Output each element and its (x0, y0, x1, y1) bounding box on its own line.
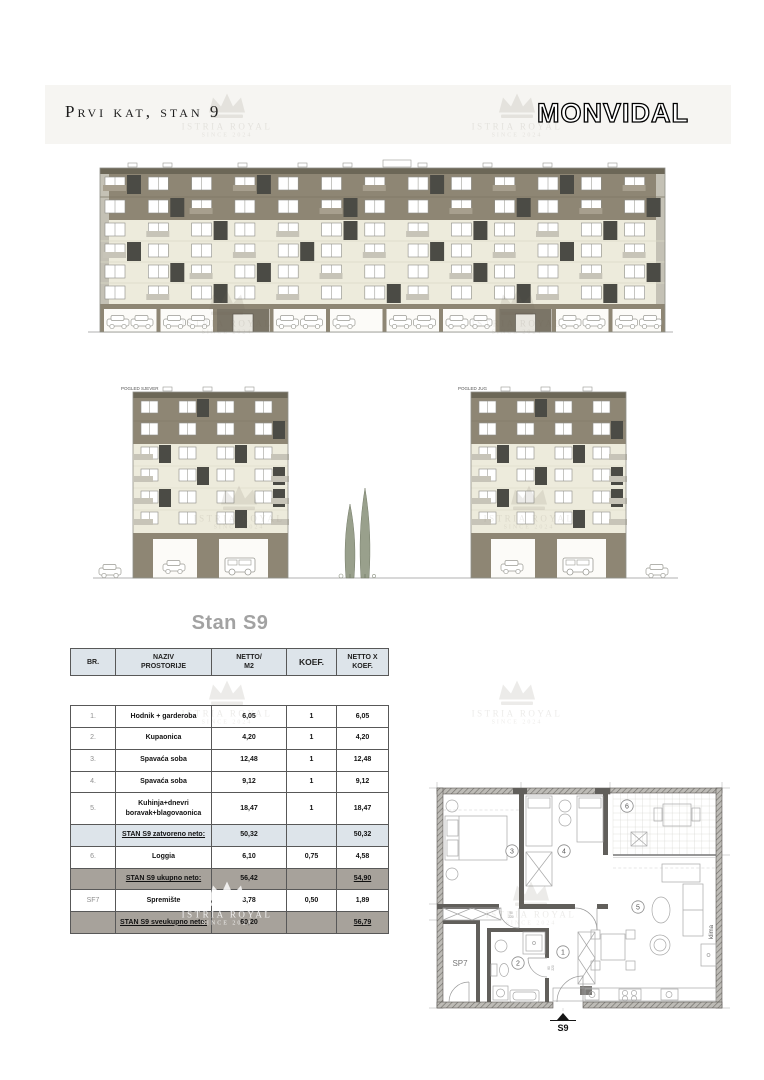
cell-koef (287, 868, 337, 890)
cell-koef: 1 (287, 793, 337, 825)
cell-br (71, 912, 116, 934)
floor-plan-drawing: 3 4 6 5 1 2 SP7 klima 90 220 80 220 S9 (425, 780, 735, 1042)
cell-netto: 6,10 (212, 846, 287, 868)
cell-koef: 1 (287, 727, 337, 749)
cell-name: Loggia (116, 846, 212, 868)
cell-koef: 0,50 (287, 890, 337, 912)
cell-netto: 60,20 (212, 912, 287, 934)
col-br: BR. (71, 649, 116, 676)
col-koef: KOEF. (287, 649, 337, 676)
cell-name: Kuhinja+dnevri boravak+blagovaonica (116, 793, 212, 825)
cell-netto: 3,78 (212, 890, 287, 912)
cell-br: 5. (71, 793, 116, 825)
unit-label: S9 (557, 1023, 568, 1033)
cell-total: 4,20 (337, 727, 389, 749)
cell-br (71, 868, 116, 890)
cell-name: Spavaća soba (116, 771, 212, 793)
cell-total: 54,90 (337, 868, 389, 890)
room-label-3: 3 (510, 849, 514, 856)
svg-text:220: 220 (551, 965, 555, 971)
axis-dashes (443, 810, 715, 1032)
cell-koef: 1 (287, 771, 337, 793)
storage-label: SP7 (452, 959, 468, 968)
cell-total: 12,48 (337, 749, 389, 771)
table-row: STAN S9 sveukupno neto:60,2056,79 (71, 912, 389, 934)
cell-total: 9,12 (337, 771, 389, 793)
crown-icon (494, 679, 540, 709)
cell-netto: 56,42 (212, 868, 287, 890)
page-title: Prvi kat, stan 9 (65, 102, 221, 122)
cell-koef (287, 824, 337, 846)
table-row: 6.Loggia6,100,754,58 (71, 846, 389, 868)
klima-label: klima (709, 924, 715, 939)
elevation-label-south: POGLED JUG (458, 386, 488, 391)
table-title: Stan S9 (70, 612, 390, 635)
col-netto: NETTO/ M2 (212, 649, 287, 676)
unit-marker: S9 (550, 1013, 576, 1033)
elevation-label-north: POGLED SJEVER (121, 386, 159, 391)
walls (437, 788, 722, 1008)
watermark: ISTRIA ROYALSINCE 2024 (455, 679, 579, 726)
cell-br: SF7 (71, 890, 116, 912)
side-elevations-drawing: POGLED SJEVER POGLED JUG (93, 378, 678, 586)
cell-name: STAN S9 ukupno neto: (116, 868, 212, 890)
col-netto-koef: NETTO X KOEF. (337, 649, 389, 676)
col-naziv: NAZIV PROSTORIJE (116, 649, 212, 676)
cell-total: 4,58 (337, 846, 389, 868)
watermark-subtext: SINCE 2024 (455, 720, 579, 726)
front-elevation-drawing (88, 156, 673, 338)
room-label-6: 6 (625, 804, 629, 811)
cell-total: 18,47 (337, 793, 389, 825)
table-row: STAN S9 ukupno neto:56,4254,90 (71, 868, 389, 890)
area-table-header: BR. NAZIV PROSTORIJE NETTO/ M2 KOEF. NET… (70, 648, 389, 676)
svg-text:220: 220 (508, 915, 514, 919)
room-label-5: 5 (636, 905, 640, 912)
cell-br: 1. (71, 706, 116, 728)
cell-br: 4. (71, 771, 116, 793)
cell-total: 56,79 (337, 912, 389, 934)
area-table: 1.Hodnik + garderoba6,0516,052.Kupaonica… (70, 705, 389, 934)
table-row: 4.Spavaća soba9,1219,12 (71, 771, 389, 793)
cell-koef: 0,75 (287, 846, 337, 868)
brand-logo: MONVIDAL (537, 98, 689, 129)
table-row: STAN S9 zatvoreno neto:50,3250,32 (71, 824, 389, 846)
cell-netto: 50,32 (212, 824, 287, 846)
table-row: 1.Hodnik + garderoba6,0516,05 (71, 706, 389, 728)
cell-name: Spavaća soba (116, 749, 212, 771)
room-labels: 3 4 6 5 1 2 SP7 klima 90 220 80 220 (452, 800, 715, 971)
cell-netto: 12,48 (212, 749, 287, 771)
cell-koef (287, 912, 337, 934)
table-row: 2.Kupaonica4,2014,20 (71, 727, 389, 749)
cell-total: 1,89 (337, 890, 389, 912)
cell-netto: 4,20 (212, 727, 287, 749)
cell-br: 6. (71, 846, 116, 868)
cell-name: Spremište (116, 890, 212, 912)
cell-br (71, 824, 116, 846)
page: Prvi kat, stan 9 MONVIDAL POGLED SJEVER … (0, 0, 764, 1080)
room-label-2: 2 (516, 961, 520, 968)
cell-name: STAN S9 zatvoreno neto: (116, 824, 212, 846)
cell-koef: 1 (287, 706, 337, 728)
area-table-section: Stan S9 BR. NAZIV PROSTORIJE NETTO/ M2 K… (70, 612, 390, 934)
cell-name: Hodnik + garderoba (116, 706, 212, 728)
cell-name: STAN S9 sveukupno neto: (116, 912, 212, 934)
watermark-text: ISTRIA ROYAL (455, 709, 579, 719)
header-band: Prvi kat, stan 9 MONVIDAL (45, 85, 731, 144)
table-row: 3.Spavaća soba12,48112,48 (71, 749, 389, 771)
cell-netto: 9,12 (212, 771, 287, 793)
cell-total: 6,05 (337, 706, 389, 728)
cell-netto: 18,47 (212, 793, 287, 825)
table-row: SF7Spremište3,780,501,89 (71, 890, 389, 912)
cell-koef: 1 (287, 749, 337, 771)
cell-br: 2. (71, 727, 116, 749)
cell-name: Kupaonica (116, 727, 212, 749)
table-row: 5.Kuhinja+dnevri boravak+blagovaonica18,… (71, 793, 389, 825)
room-label-1: 1 (561, 950, 565, 957)
cell-netto: 6,05 (212, 706, 287, 728)
cell-total: 50,32 (337, 824, 389, 846)
room-label-4: 4 (562, 849, 566, 856)
cell-br: 3. (71, 749, 116, 771)
